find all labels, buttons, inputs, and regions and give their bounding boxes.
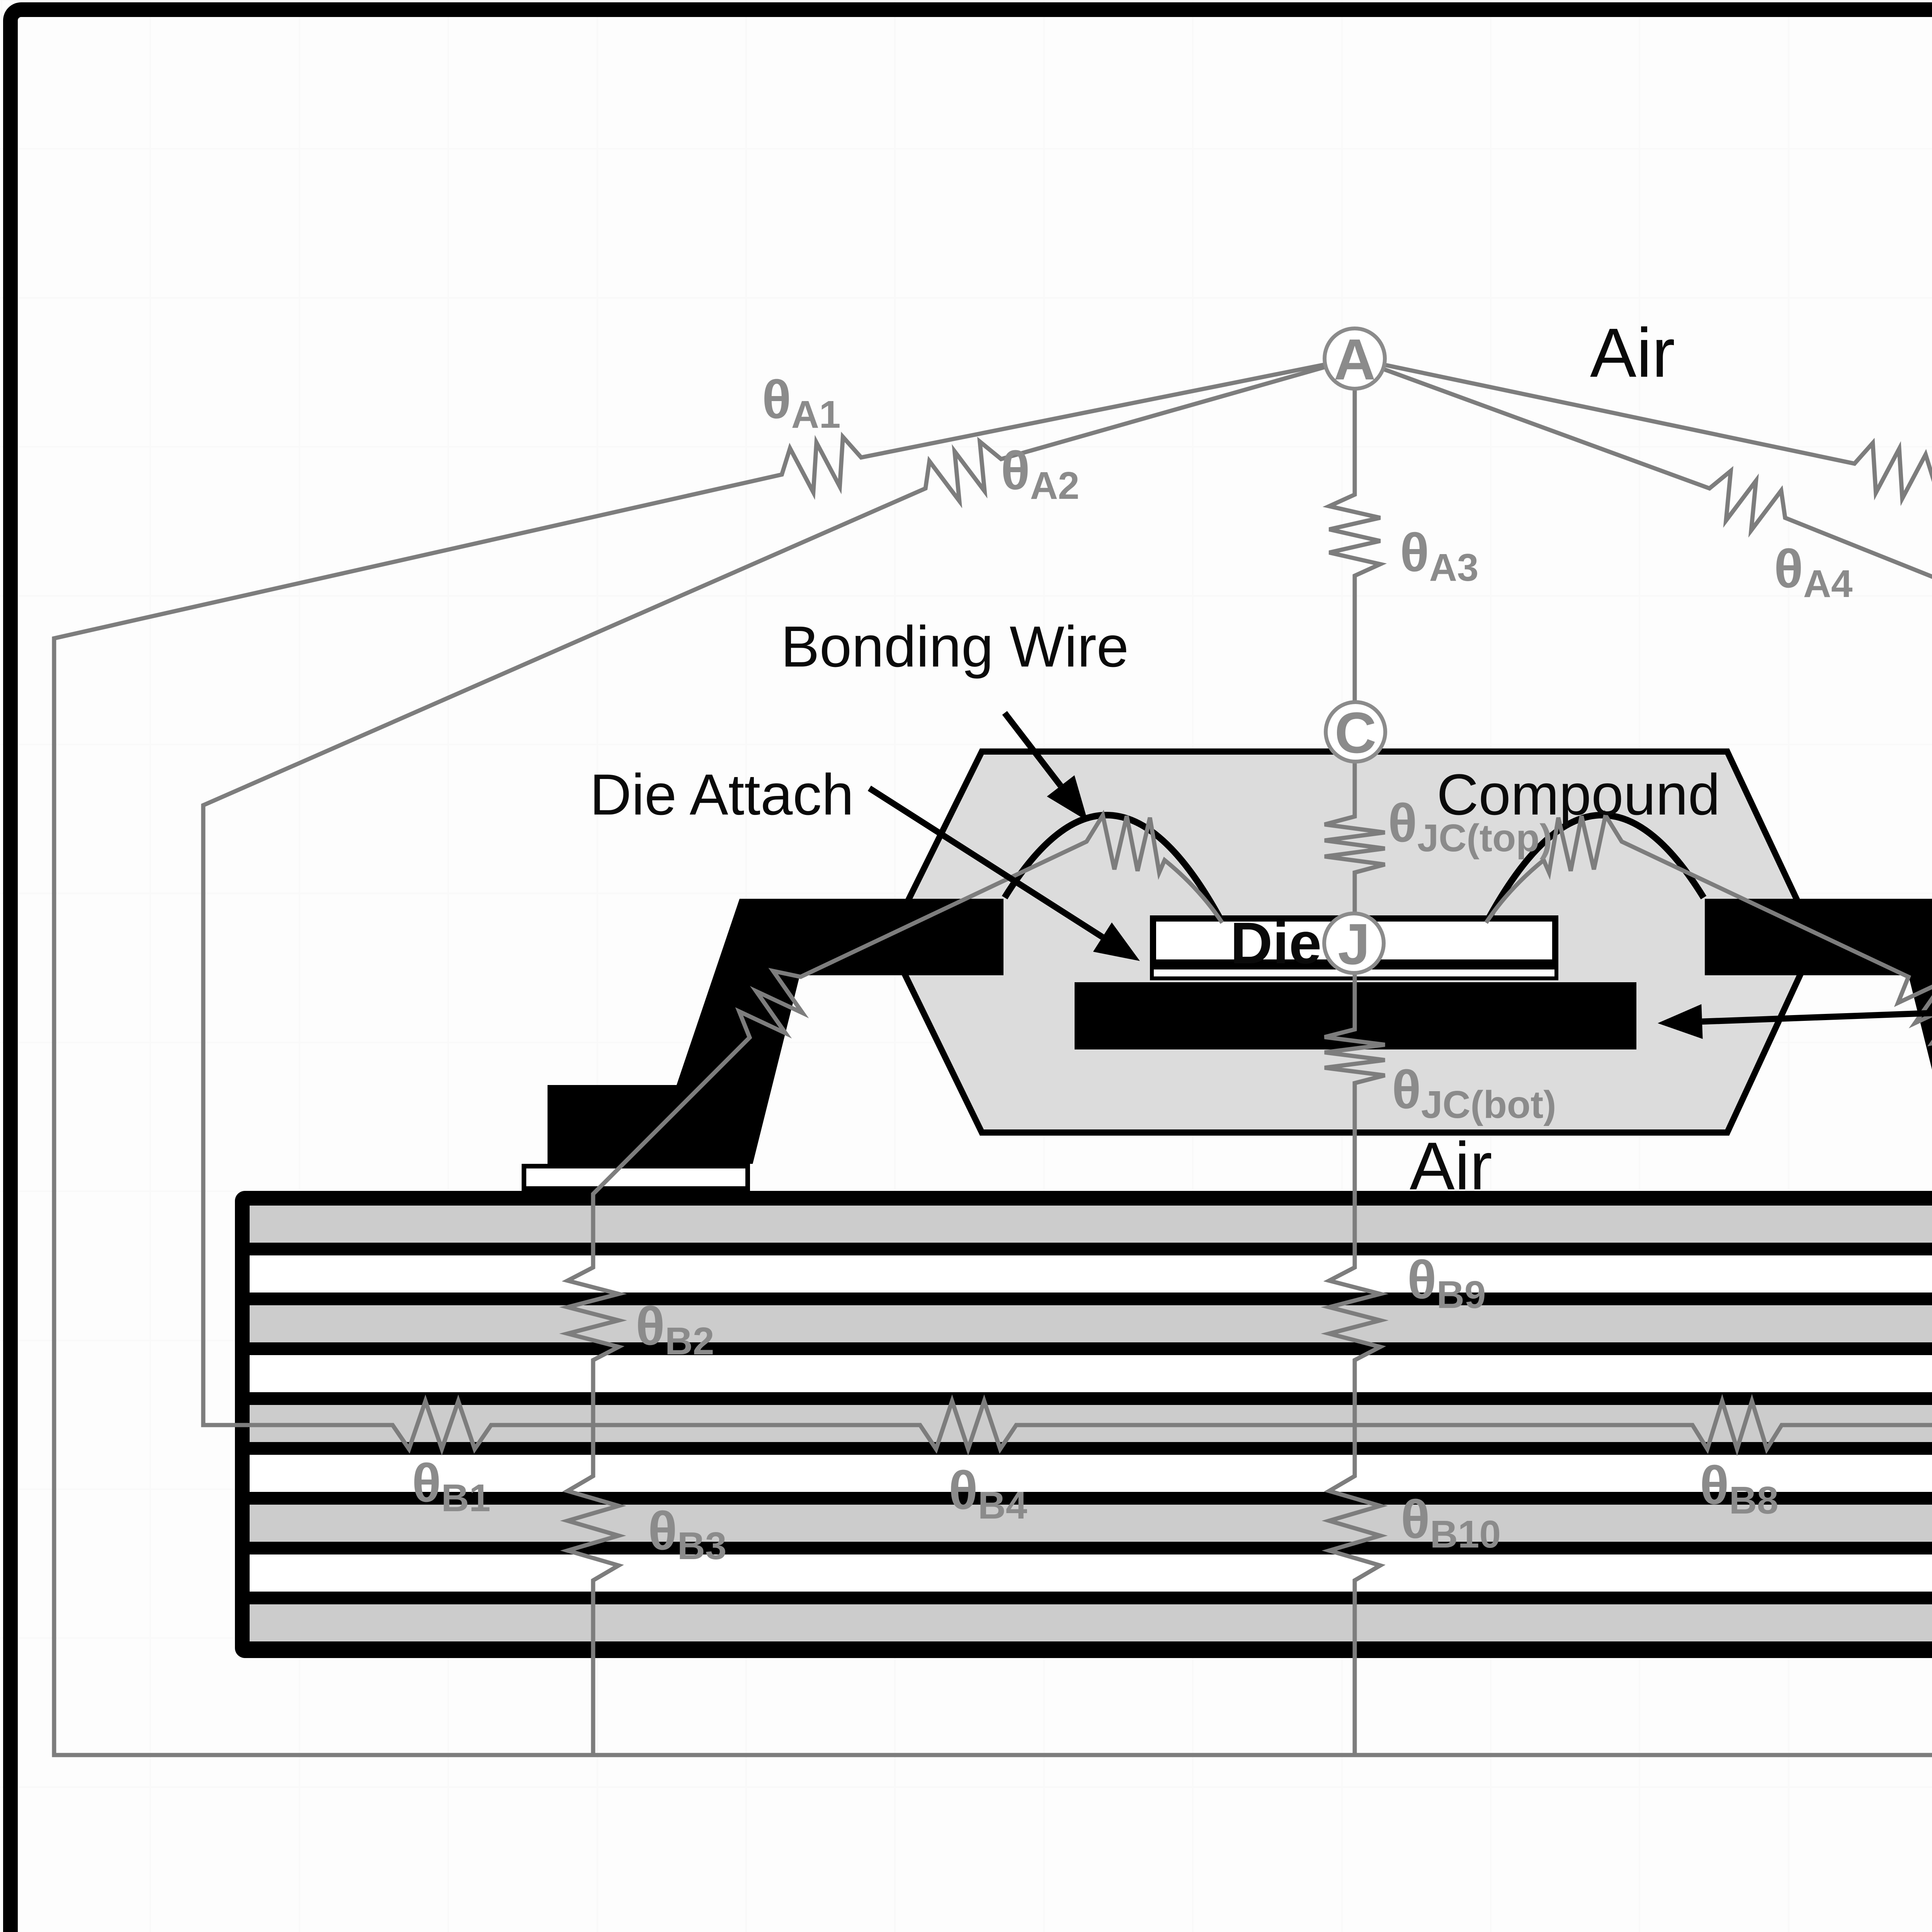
svg-text:C: C <box>1335 700 1376 765</box>
svg-text:Bonding Wire: Bonding Wire <box>781 614 1129 679</box>
svg-text:A: A <box>1334 327 1376 392</box>
svg-text:Compound: Compound <box>1437 762 1720 827</box>
svg-text:J: J <box>1338 912 1370 976</box>
svg-text:Die: Die <box>1230 910 1322 976</box>
svg-text:Air: Air <box>1410 1129 1492 1204</box>
svg-text:Air: Air <box>1590 314 1675 392</box>
svg-text:Die Attach: Die Attach <box>590 762 854 827</box>
